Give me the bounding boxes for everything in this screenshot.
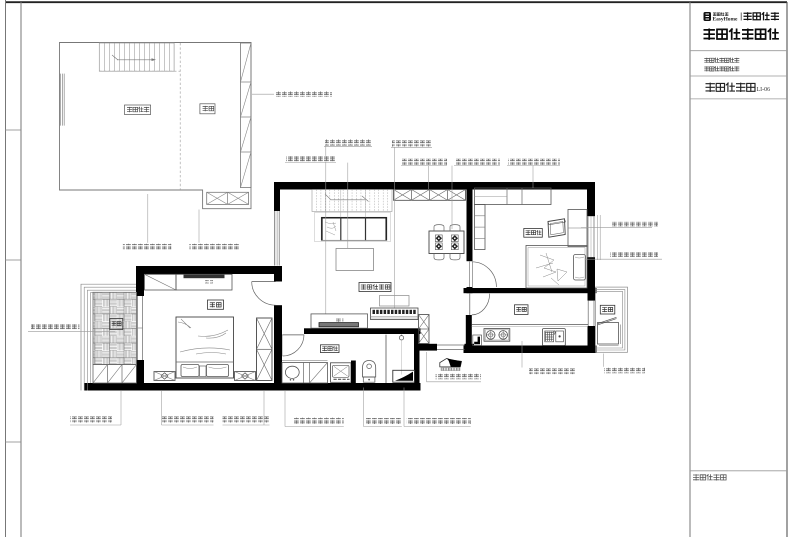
svg-text:EasyHome: EasyHome (713, 17, 738, 23)
svg-text:LI-06: LI-06 (757, 87, 771, 93)
